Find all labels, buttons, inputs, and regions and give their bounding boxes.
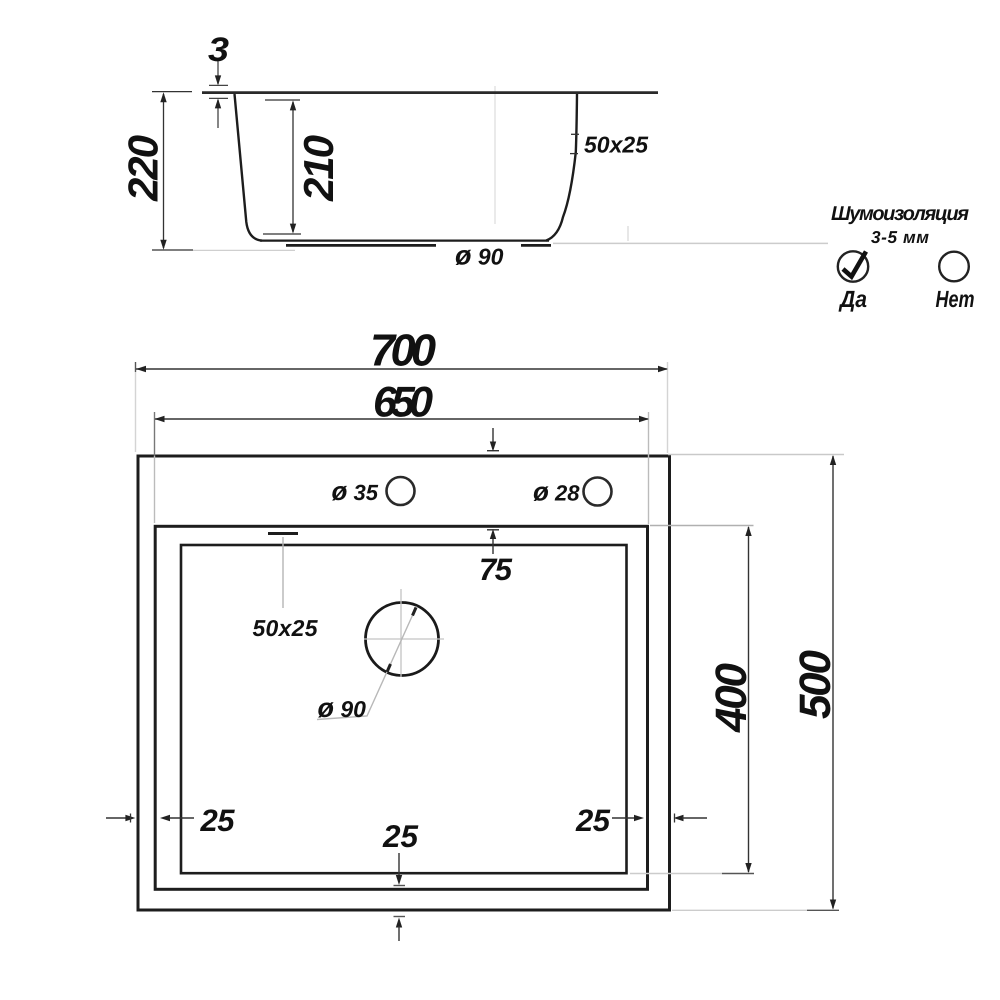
svg-text:25: 25	[200, 803, 236, 838]
svg-text:220: 220	[120, 135, 167, 202]
svg-text:Шумоизоляция: Шумоизоляция	[831, 203, 969, 225]
svg-text:650: 650	[373, 379, 433, 427]
svg-text:ø 35: ø 35	[332, 476, 379, 506]
svg-text:ø 90: ø 90	[318, 693, 367, 723]
svg-text:Да: Да	[838, 286, 867, 312]
svg-text:50x25: 50x25	[253, 615, 319, 641]
svg-text:50x25: 50x25	[584, 132, 649, 158]
svg-text:210: 210	[295, 135, 342, 202]
svg-text:700: 700	[370, 325, 436, 376]
svg-text:3: 3	[208, 31, 229, 69]
svg-text:ø 28: ø 28	[533, 477, 580, 507]
svg-text:75: 75	[479, 552, 513, 587]
svg-text:400: 400	[707, 662, 756, 733]
svg-text:25: 25	[575, 803, 611, 838]
svg-text:25: 25	[382, 818, 418, 854]
svg-text:500: 500	[791, 649, 840, 719]
svg-text:Нет: Нет	[936, 286, 975, 312]
svg-text:3-5 мм: 3-5 мм	[871, 227, 929, 247]
svg-text:ø 90: ø 90	[455, 241, 504, 271]
